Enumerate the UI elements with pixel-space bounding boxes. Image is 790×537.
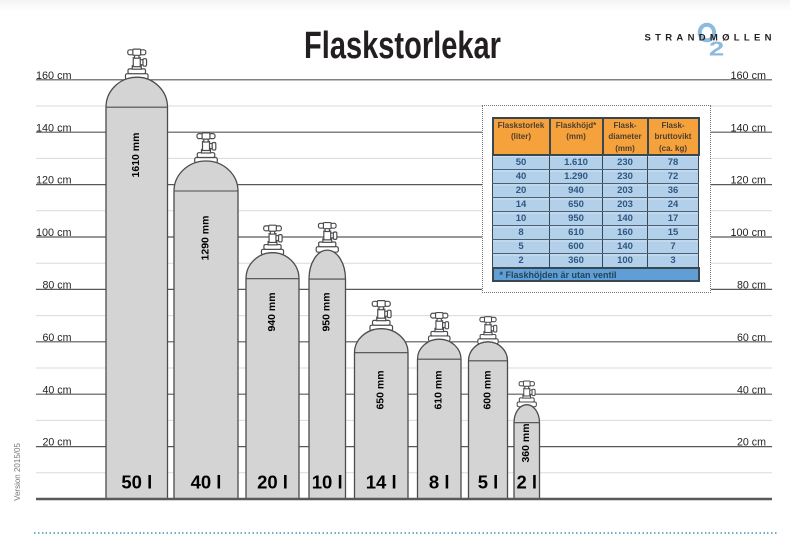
svg-text:20 cm: 20 cm (43, 437, 72, 449)
svg-text:1610 mm: 1610 mm (130, 133, 142, 178)
svg-text:10 l: 10 l (312, 472, 343, 493)
svg-text:140 cm: 140 cm (36, 122, 72, 134)
svg-text:20 l: 20 l (257, 472, 288, 493)
svg-text:160 cm: 160 cm (731, 70, 767, 82)
svg-text:610 mm: 610 mm (433, 370, 445, 409)
svg-text:40 cm: 40 cm (43, 384, 72, 396)
svg-text:120 cm: 120 cm (731, 175, 767, 187)
svg-text:60 cm: 60 cm (43, 332, 72, 344)
svg-text:140 cm: 140 cm (731, 122, 767, 134)
svg-text:2 l: 2 l (517, 472, 538, 493)
svg-text:20 cm: 20 cm (737, 437, 766, 449)
svg-text:8 l: 8 l (429, 472, 450, 493)
svg-text:650 mm: 650 mm (375, 370, 387, 409)
svg-text:60 cm: 60 cm (737, 332, 766, 344)
svg-text:360 mm: 360 mm (520, 423, 532, 462)
svg-text:80 cm: 80 cm (737, 280, 766, 292)
svg-text:1290 mm: 1290 mm (199, 216, 211, 261)
svg-text:100 cm: 100 cm (731, 227, 767, 239)
svg-text:5 l: 5 l (478, 472, 499, 493)
svg-text:940 mm: 940 mm (266, 292, 278, 331)
svg-text:120 cm: 120 cm (36, 175, 72, 187)
svg-text:14 l: 14 l (366, 472, 397, 493)
svg-text:950 mm: 950 mm (321, 292, 333, 331)
svg-text:160 cm: 160 cm (36, 70, 72, 82)
svg-text:600 mm: 600 mm (481, 370, 493, 409)
svg-text:Flaskstorlekar: Flaskstorlekar (304, 25, 501, 67)
svg-text:80 cm: 80 cm (43, 280, 72, 292)
svg-text:40 l: 40 l (191, 472, 222, 493)
svg-text:50 l: 50 l (121, 472, 152, 493)
svg-text:40 cm: 40 cm (737, 384, 766, 396)
svg-text:100 cm: 100 cm (36, 227, 72, 239)
